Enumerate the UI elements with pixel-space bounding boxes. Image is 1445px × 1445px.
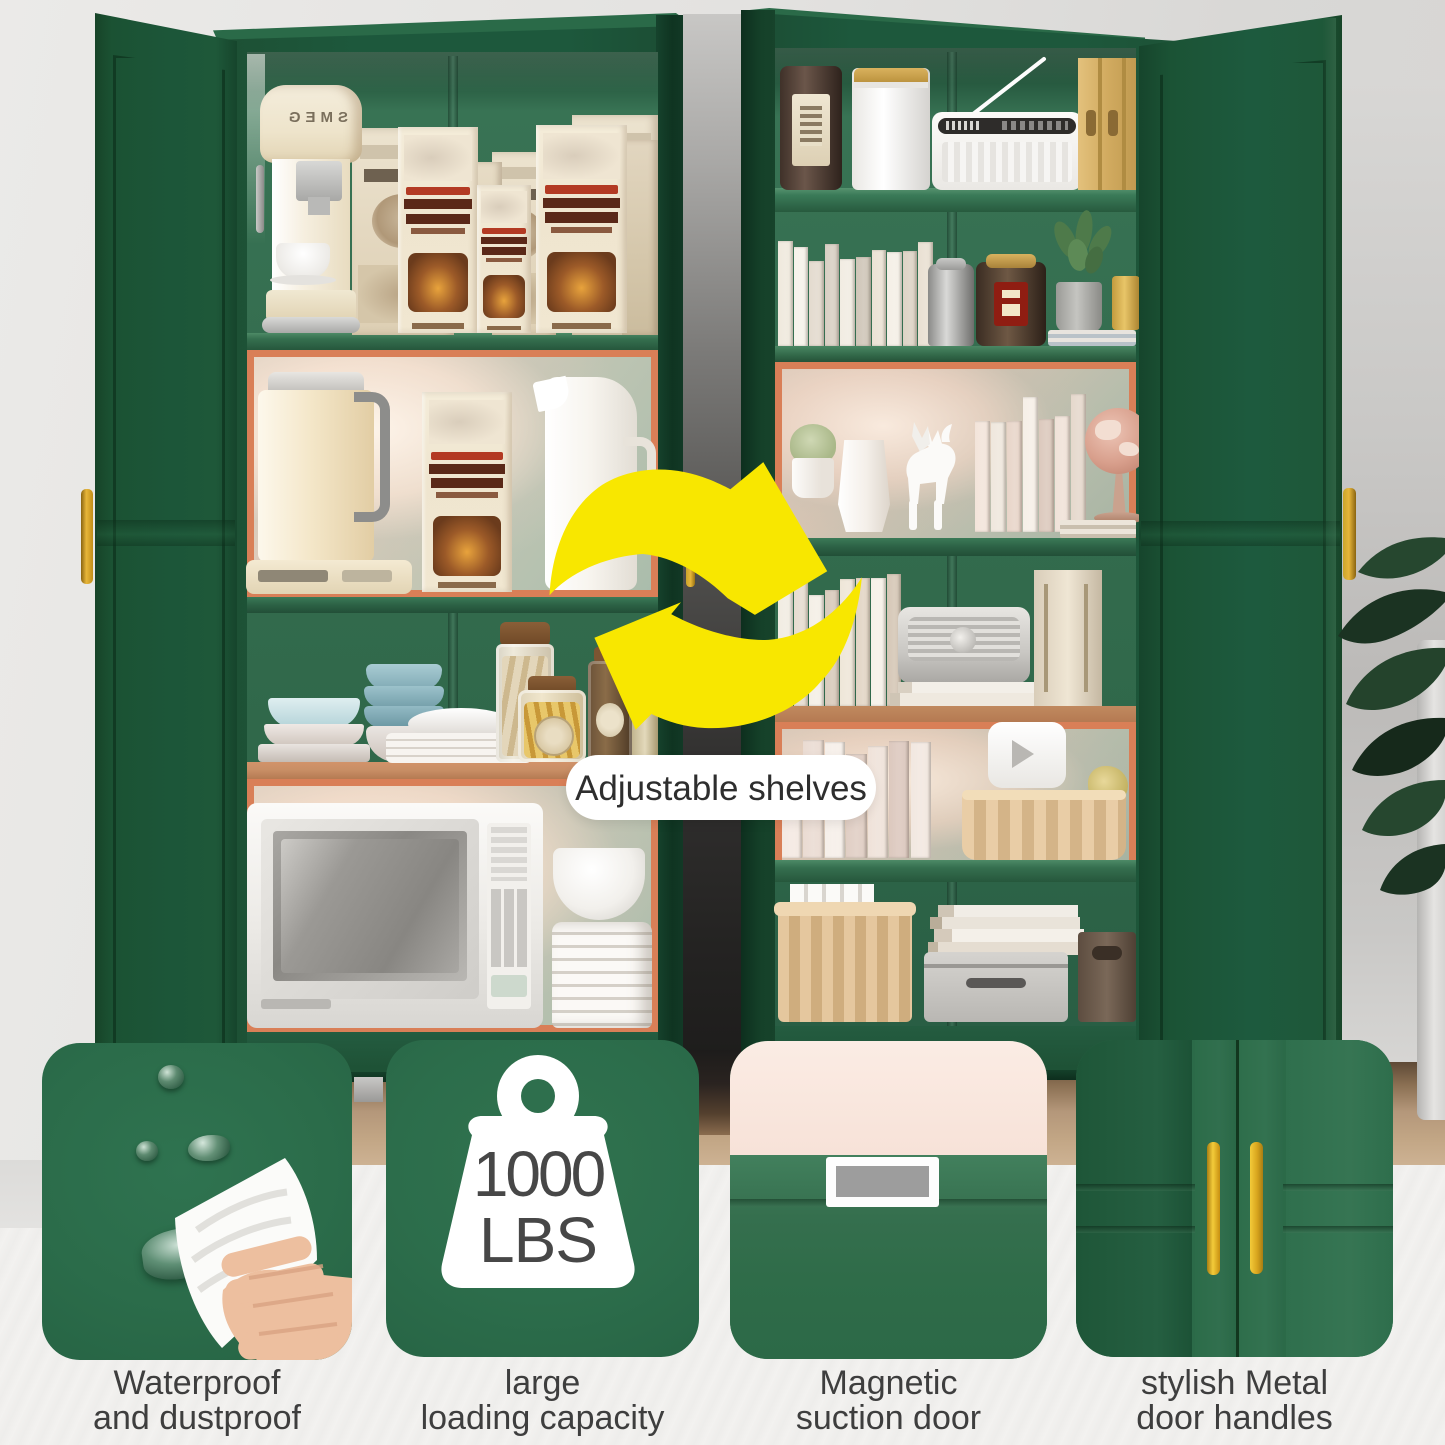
svg-text:LBS: LBS: [479, 1204, 597, 1276]
svg-text:1000: 1000: [473, 1138, 605, 1210]
